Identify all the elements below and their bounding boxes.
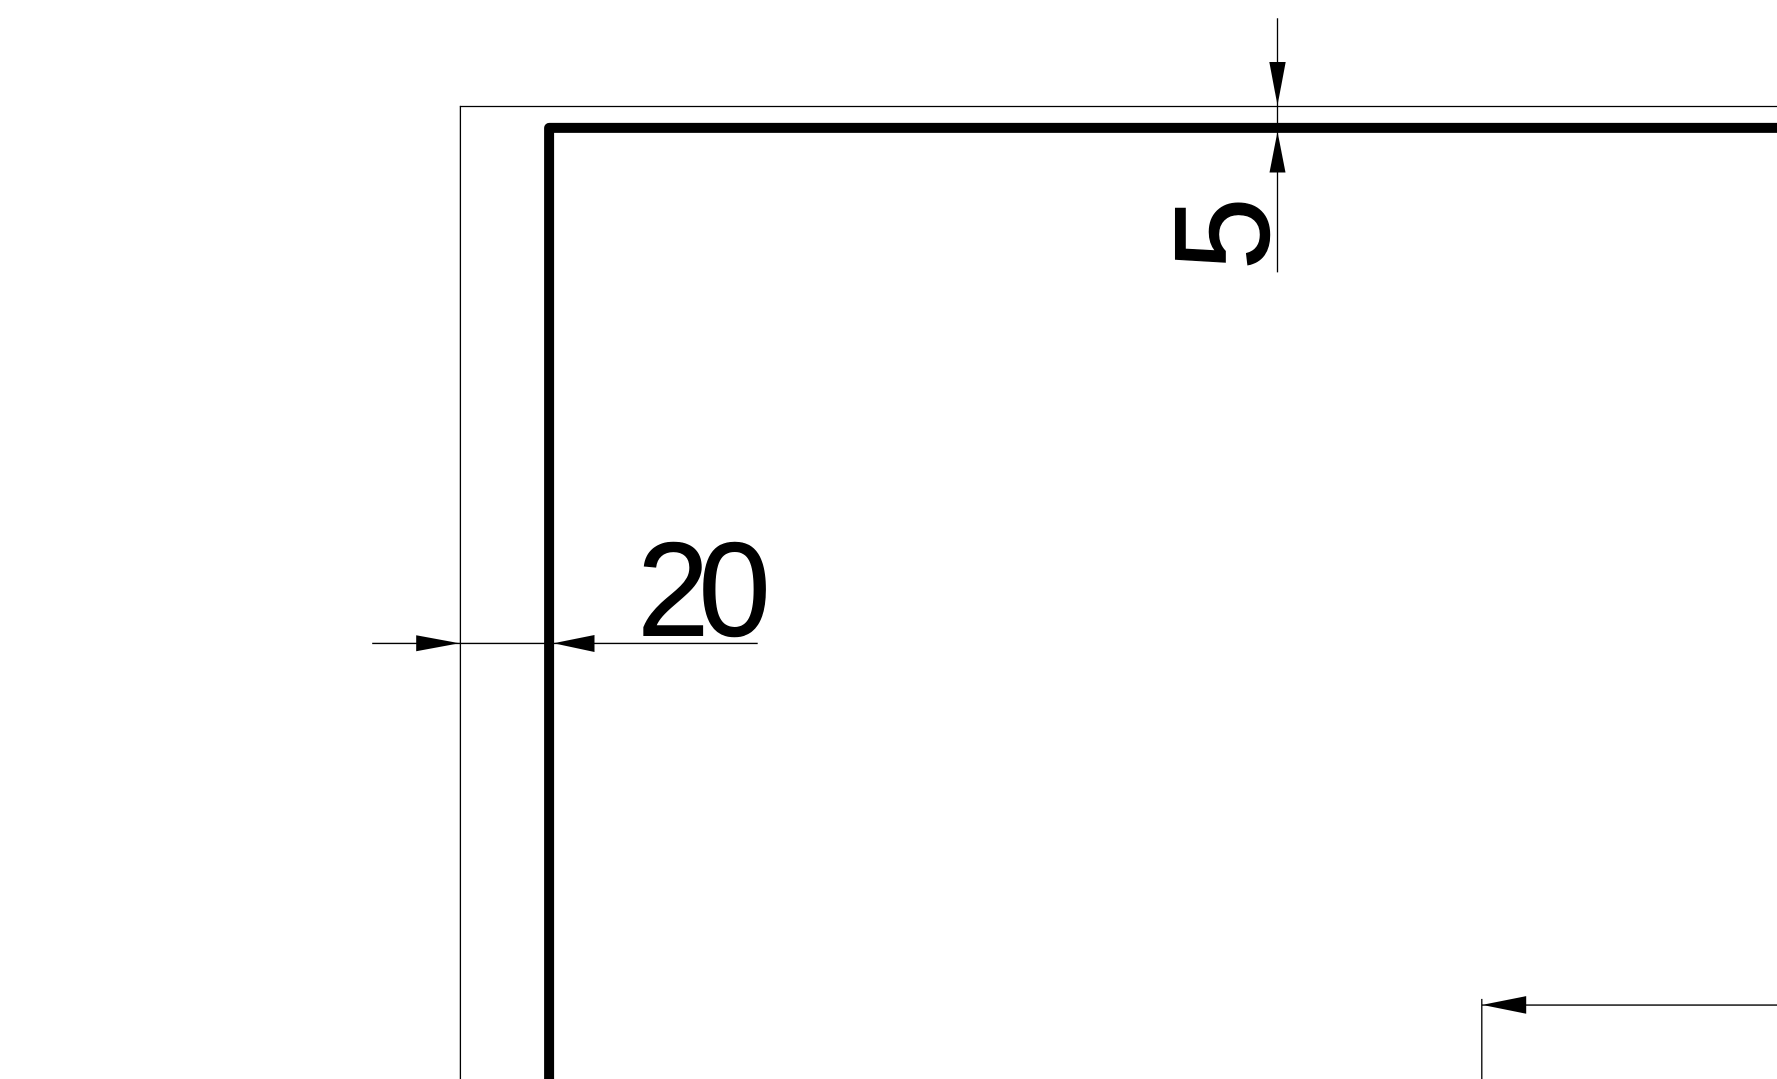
svg-text:20: 20 [637,515,766,664]
svg-text:5: 5 [1147,197,1298,270]
